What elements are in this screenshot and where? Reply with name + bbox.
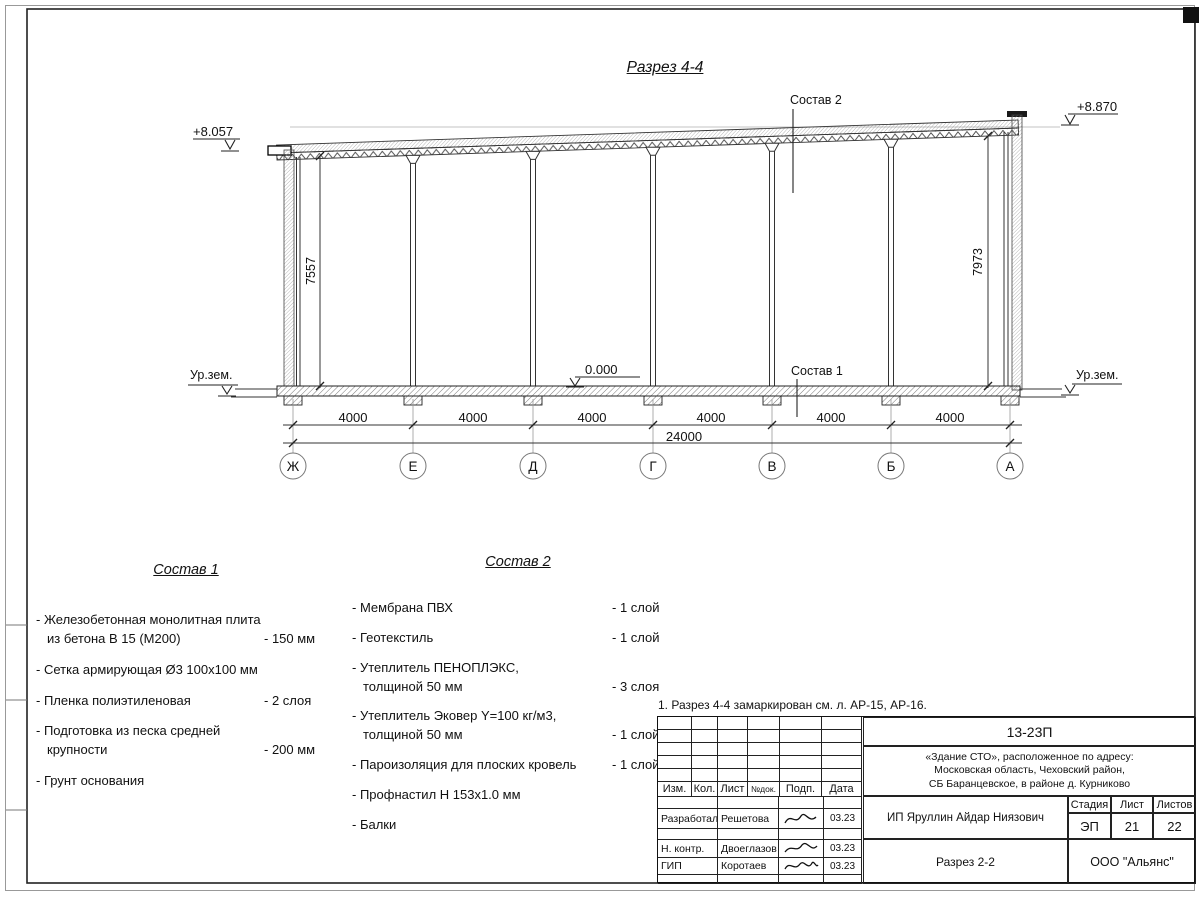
list-item: - Сетка армирующая Ø3 100x100 мм: [36, 661, 336, 680]
roof-slab: [276, 120, 1018, 160]
title-block: Изм. Кол. Лист №док. Подп. Дата Разработ…: [657, 716, 1195, 883]
list-item: - Грунт основания: [36, 772, 336, 791]
floor-composition-label: Состав 1: [791, 364, 843, 378]
list-item: - Мембрана ПВХ - 1 слой: [352, 599, 670, 618]
right-wall: [1012, 115, 1022, 390]
axis-bubble-label: Д: [520, 459, 546, 474]
ground-level-right: Ур.зем.: [1076, 368, 1118, 382]
bay-dim: 4000: [323, 410, 383, 425]
axis-bubble-label: Г: [640, 459, 666, 474]
height-dim-right: 7973: [971, 240, 985, 284]
composition-1-list: Состав 1 - Железобетонная монолитная пли…: [36, 560, 336, 803]
list-item: - Подготовка из песка средней крупности …: [36, 722, 336, 760]
left-wall: [284, 150, 294, 386]
composition-2-list: Состав 2 - Мембрана ПВХ - 1 слой - Геоте…: [352, 552, 670, 846]
columns: [406, 139, 898, 386]
roof-composition-label: Состав 2: [790, 93, 842, 107]
list-item: - Утеплитель ПЕНОПЛЭКС, толщиной 50 мм -…: [352, 659, 670, 697]
bay-dim: 4000: [562, 410, 622, 425]
total-dim: 24000: [652, 429, 716, 444]
axis-bubble-label: Ж: [280, 459, 306, 474]
sheets-label: Листов: [1153, 796, 1196, 813]
bay-dim: 4000: [920, 410, 980, 425]
list-item: - Пленка полиэтиленовая - 2 слоя: [36, 692, 336, 711]
bay-dim: 4000: [443, 410, 503, 425]
object-address: «Здание СТО», расположенное по адресу: М…: [863, 746, 1196, 796]
stage-label: Стадия: [1068, 796, 1111, 813]
signature-table: Разработал Решетова 03.23 Н. контр. Двое…: [658, 797, 863, 884]
bay-dim: 4000: [801, 410, 861, 425]
list-item: - Геотекстиль - 1 слой: [352, 629, 670, 648]
section-drawing: [0, 0, 1200, 520]
drawing-title: Разрез 4-4: [560, 59, 770, 77]
composition-1-title: Состав 1: [36, 560, 336, 581]
sheet-title: Разрез 2-2: [863, 839, 1068, 884]
ground-level-left: Ур.зем.: [190, 368, 232, 382]
floor-slab: [277, 386, 1020, 396]
list-item: - Пароизоляция для плоских кровель - 1 с…: [352, 756, 670, 775]
axis-bubble-label: Б: [878, 459, 904, 474]
axis-bubble-label: В: [759, 459, 785, 474]
list-item: - Утеплитель Эковер Y=100 кг/м3, толщино…: [352, 707, 670, 745]
list-item: - Балки: [352, 816, 670, 835]
signature-scribble: [779, 858, 824, 875]
axis-bubble-label: Е: [400, 459, 426, 474]
company-name: ООО "Альянс": [1068, 839, 1196, 884]
revision-header-row: Изм. Кол. Лист №док. Подп. Дата: [658, 782, 863, 797]
footings: [284, 396, 1019, 405]
sheet-number: 21: [1111, 813, 1153, 839]
document-number: 13-23П: [863, 717, 1196, 746]
elevation-left-top: +8.057: [193, 124, 233, 139]
client-name: ИП Яруллин Айдар Ниязович: [863, 796, 1068, 839]
elevation-right-top: +8.870: [1077, 99, 1117, 114]
list-item: - Железобетонная монолитная плита из бет…: [36, 611, 336, 649]
height-dim-left: 7557: [304, 249, 318, 293]
sheet-note: 1. Разрез 4-4 замаркирован см. л. АР-15,…: [658, 698, 927, 712]
list-item: - Профнастил Н 153х1.0 мм: [352, 786, 670, 805]
sheet-label: Лист: [1111, 796, 1153, 813]
stage-value: ЭП: [1068, 813, 1111, 839]
revision-table: [658, 717, 863, 782]
composition-2-title: Состав 2: [352, 552, 670, 573]
signature-scribble: [779, 840, 824, 858]
bay-dim: 4000: [681, 410, 741, 425]
axis-bubble-label: А: [997, 459, 1023, 474]
sheets-total: 22: [1153, 813, 1196, 839]
signature-scribble: [779, 809, 824, 829]
elevation-floor: 0.000: [585, 362, 618, 377]
